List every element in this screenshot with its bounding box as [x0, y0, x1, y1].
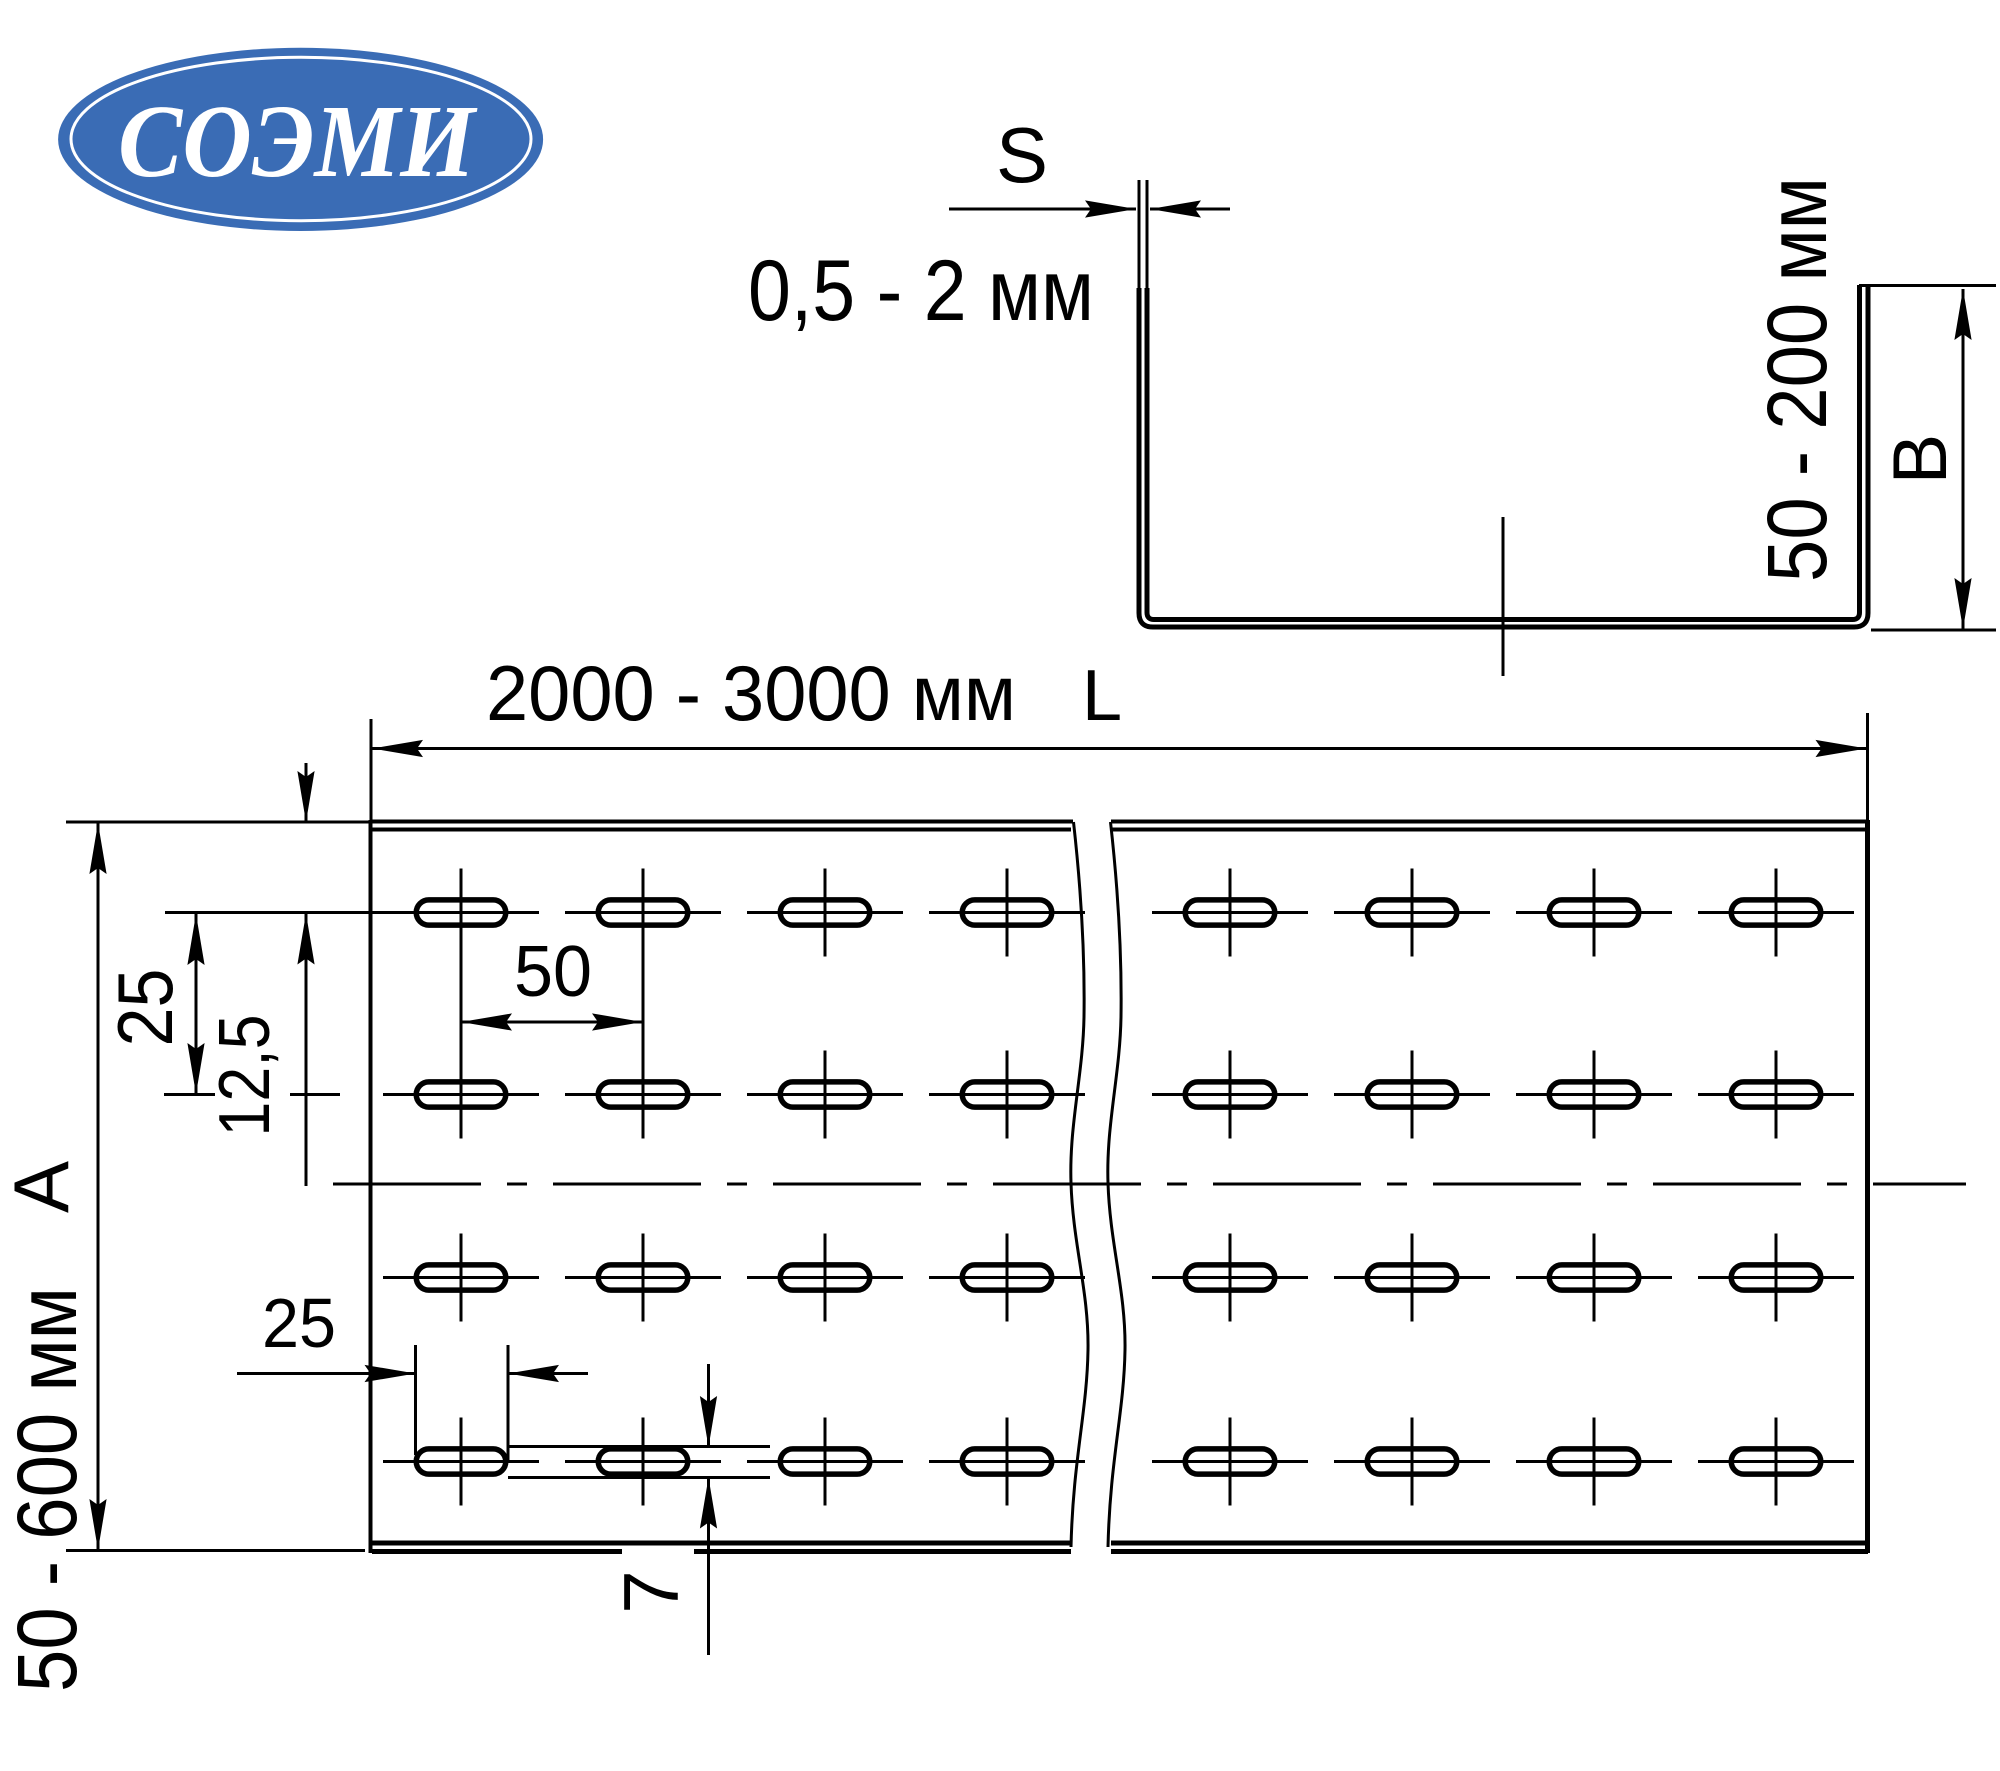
svg-text:А: А [0, 1161, 85, 1213]
svg-text:СОЭМИ: СОЭМИ [118, 84, 478, 199]
svg-text:L: L [1082, 656, 1122, 736]
svg-text:S: S [996, 111, 1048, 199]
svg-text:7: 7 [607, 1570, 695, 1613]
svg-text:50: 50 [514, 932, 592, 1012]
svg-text:B: B [1878, 434, 1963, 485]
svg-text:12,5: 12,5 [205, 1015, 285, 1137]
svg-text:50 - 200 мм: 50 - 200 мм [1750, 177, 1844, 582]
svg-text:2000 - 3000 мм: 2000 - 3000 мм [486, 649, 1016, 737]
svg-text:25: 25 [262, 1284, 336, 1362]
svg-text:25: 25 [101, 969, 189, 1047]
svg-text:0,5 - 2 мм: 0,5 - 2 мм [748, 243, 1094, 339]
svg-text:50 - 600 мм: 50 - 600 мм [0, 1287, 94, 1692]
